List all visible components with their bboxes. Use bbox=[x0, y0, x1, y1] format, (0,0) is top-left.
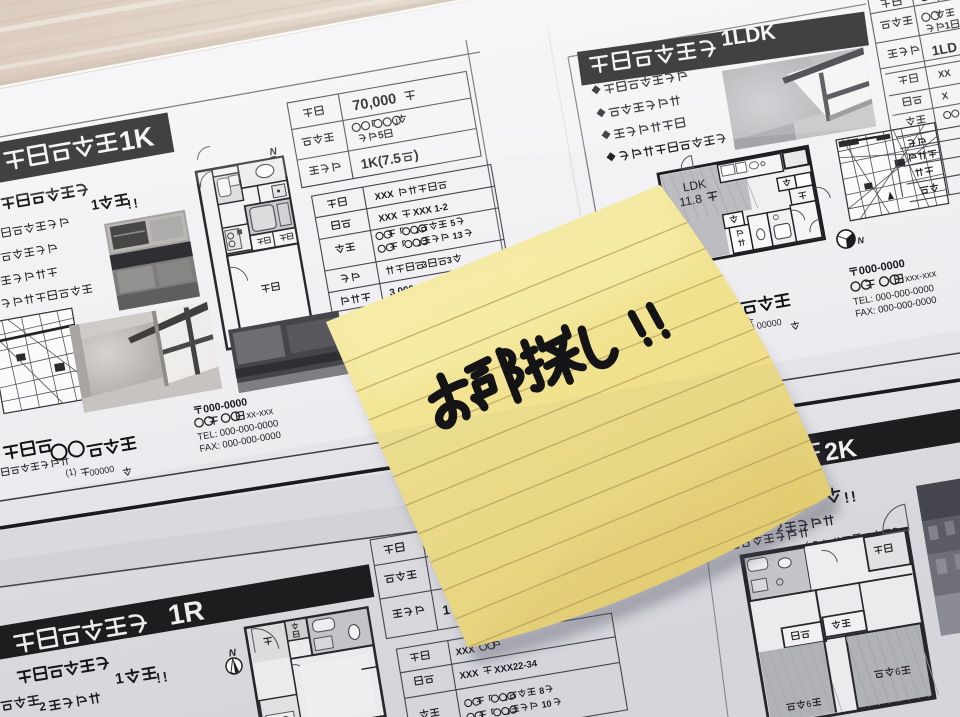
svg-text:!!: !! bbox=[126, 195, 141, 212]
svg-text:(1): (1) bbox=[65, 466, 78, 478]
svg-text:13: 13 bbox=[452, 230, 464, 242]
